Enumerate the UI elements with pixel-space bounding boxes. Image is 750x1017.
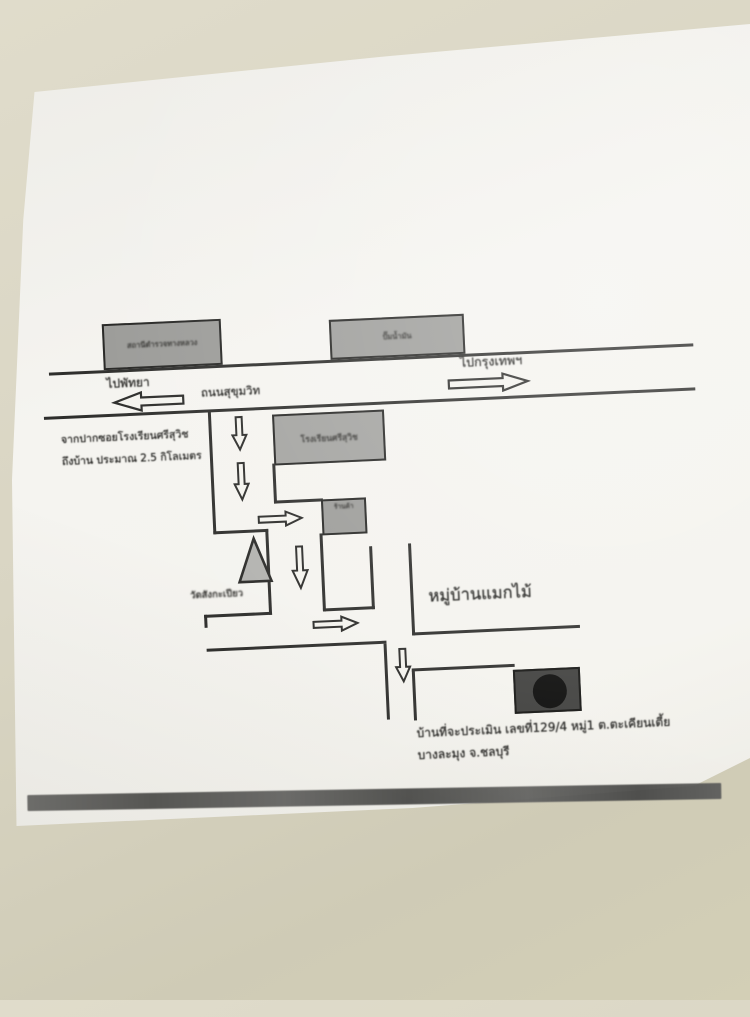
- shop-lane-bottom-edge: [323, 606, 375, 611]
- destination-circle-icon: [532, 674, 568, 710]
- mid-down-arrow-icon: [290, 544, 310, 591]
- soi-down-arrow-1-icon: [230, 415, 249, 453]
- landmark-building-2: ปั๊มน้ำมัน: [329, 314, 466, 360]
- lane-to-house-edge: [412, 664, 515, 672]
- final-down-arrow-icon: [394, 647, 413, 685]
- school-side-edge: [272, 463, 277, 503]
- shop-building: ร้านค้า: [321, 497, 368, 535]
- pattaya-direction-arrow-icon: [111, 389, 186, 414]
- shop-label: ร้านค้า: [334, 501, 354, 512]
- sketch-map: สถานีตำรวจทางหลวง ปั๊มน้ำมัน ไปพัทยา ถนน…: [0, 0, 750, 1016]
- note-line-2: ถึงบ้าน ประมาณ 2.5 กิโลเมตร: [62, 447, 202, 470]
- lower-street-bottom-edge: [207, 641, 387, 652]
- village-corner-horizontal: [412, 625, 580, 636]
- address-line-1: บ้านที่จะประเมิน เลขที่129/4 หมู่1 ต.ตะเ…: [416, 713, 670, 743]
- village-label: หมู่บ้านแมกไม้: [428, 579, 533, 610]
- final-lane-left-edge: [384, 644, 390, 720]
- school-to-shop-edge: [274, 498, 323, 503]
- school-building: โรงเรียนศรีสุวิช: [272, 410, 386, 466]
- village-corner-vertical: [408, 543, 415, 635]
- scanned-dark-bar: [27, 783, 721, 811]
- note-line-1: จากปากซอยโรงเรียนศรีสุวิช: [61, 425, 189, 448]
- road-name-label: ถนนสุขุมวิท: [201, 382, 261, 403]
- village-left-short-edge: [369, 546, 375, 609]
- final-lane-right-edge: [412, 670, 417, 720]
- soi-down-arrow-2-icon: [232, 461, 251, 503]
- lower-left-street-edge: [204, 612, 272, 618]
- destination-house-marker: [513, 667, 582, 714]
- address-line-2: บางละมุง จ.ชลบุรี: [417, 742, 510, 765]
- lower-left-street-hook: [204, 615, 208, 628]
- landmark-building-1-label: สถานีตำรวจทางหลวง: [127, 337, 198, 352]
- soi-left-edge: [208, 410, 217, 534]
- direction-bangkok-label: ไปกรุงเทพฯ: [459, 350, 522, 373]
- temple-label: วัดสังกะเปียว: [190, 586, 244, 603]
- bangkok-direction-arrow-icon: [446, 371, 531, 395]
- landmark-building-1: สถานีตำรวจทางหลวง: [102, 319, 223, 370]
- temple-triangle-icon: [234, 534, 275, 592]
- landmark-building-2-label: ปั๊มน้ำมัน: [382, 330, 412, 343]
- shop-lane-left-edge: [319, 533, 326, 611]
- mid-right-arrow-icon: [256, 509, 304, 528]
- school-label: โรงเรียนศรีสุวิช: [300, 429, 358, 446]
- lower-right-arrow-icon: [311, 614, 360, 634]
